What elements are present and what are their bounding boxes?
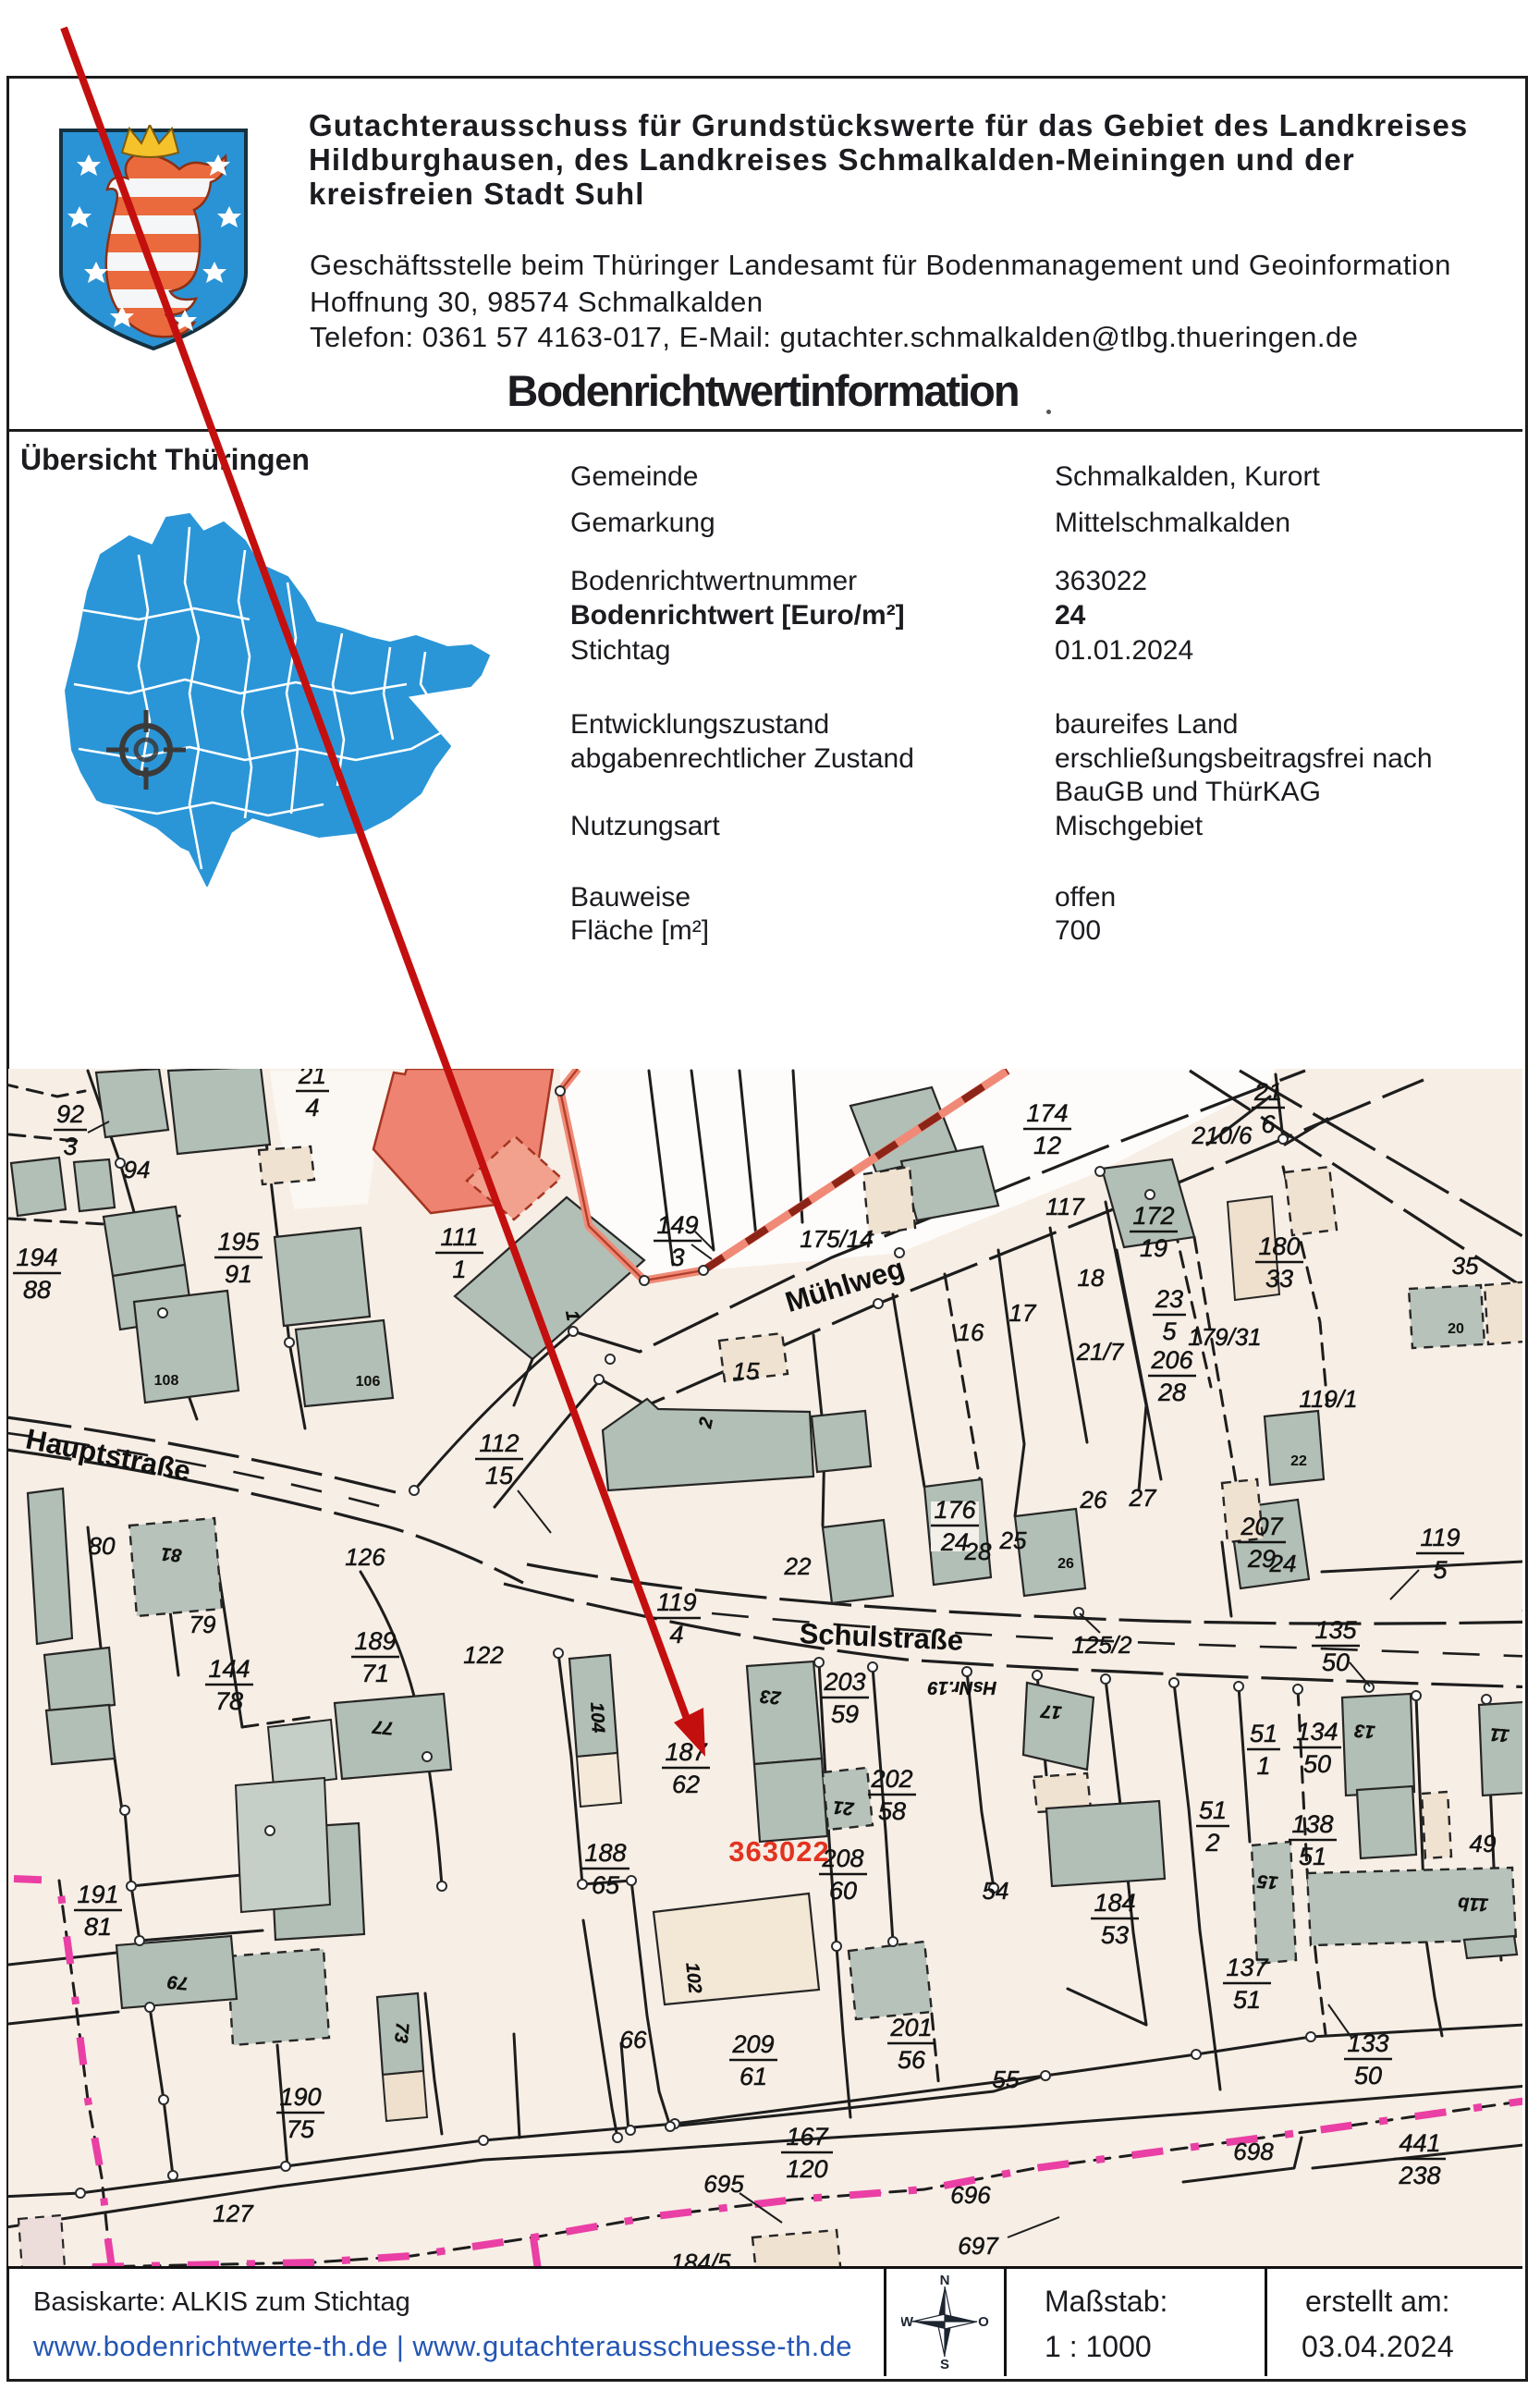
- svg-text:167: 167: [786, 2123, 828, 2151]
- svg-text:3: 3: [63, 1133, 77, 1160]
- svg-text:51: 51: [1250, 1720, 1277, 1747]
- svg-text:51: 51: [1233, 1986, 1261, 2014]
- svg-text:207: 207: [1240, 1513, 1283, 1540]
- svg-text:26: 26: [1080, 1486, 1107, 1514]
- svg-text:119: 119: [1420, 1524, 1460, 1551]
- svg-text:5: 5: [1162, 1318, 1177, 1345]
- svg-text:127: 127: [213, 2200, 254, 2227]
- svg-text:24: 24: [1269, 1550, 1297, 1577]
- svg-text:210/6: 210/6: [1191, 1121, 1253, 1149]
- svg-text:209: 209: [731, 2030, 774, 2058]
- svg-text:135: 135: [1314, 1616, 1357, 1644]
- svg-text:191: 191: [77, 1881, 118, 1908]
- svg-text:81: 81: [160, 1543, 182, 1565]
- svg-text:51: 51: [1199, 1796, 1227, 1824]
- svg-text:17: 17: [1040, 1700, 1063, 1722]
- svg-text:23: 23: [759, 1685, 782, 1708]
- svg-text:112: 112: [479, 1429, 519, 1457]
- svg-text:62: 62: [672, 1771, 700, 1798]
- svg-text:21/7: 21/7: [1076, 1338, 1125, 1366]
- svg-text:202: 202: [870, 1765, 912, 1793]
- svg-text:149: 149: [656, 1211, 698, 1239]
- svg-text:21: 21: [1253, 1078, 1282, 1106]
- svg-text:144: 144: [208, 1655, 250, 1683]
- svg-text:108: 108: [154, 1373, 179, 1389]
- svg-text:133: 133: [1347, 2029, 1388, 2057]
- svg-text:4: 4: [305, 1094, 319, 1121]
- svg-text:55: 55: [993, 2065, 1020, 2093]
- svg-text:6: 6: [1261, 1110, 1276, 1138]
- svg-text:125/2: 125/2: [1071, 1631, 1132, 1659]
- svg-text:190: 190: [279, 2083, 321, 2111]
- svg-text:106: 106: [356, 1374, 381, 1390]
- svg-text:50: 50: [1322, 1648, 1350, 1676]
- svg-text:77: 77: [372, 1716, 395, 1738]
- svg-text:65: 65: [592, 1871, 620, 1899]
- svg-text:50: 50: [1303, 1750, 1331, 1778]
- svg-text:88: 88: [23, 1276, 51, 1304]
- svg-text:20: 20: [1448, 1321, 1464, 1337]
- svg-text:134: 134: [1296, 1718, 1338, 1746]
- svg-text:15: 15: [1256, 1870, 1279, 1893]
- svg-text:73: 73: [390, 2021, 412, 2043]
- svg-text:363022: 363022: [728, 1835, 829, 1868]
- svg-text:33: 33: [1265, 1265, 1293, 1293]
- svg-text:187: 187: [665, 1738, 707, 1766]
- svg-text:N: N: [940, 2274, 950, 2288]
- svg-text:111: 111: [440, 1223, 478, 1251]
- svg-text:696: 696: [950, 2181, 991, 2209]
- svg-text:58: 58: [878, 1797, 906, 1825]
- svg-text:26: 26: [1057, 1556, 1074, 1572]
- svg-text:102: 102: [681, 1962, 704, 1994]
- svg-text:172: 172: [1132, 1202, 1174, 1230]
- svg-text:695: 695: [703, 2170, 744, 2198]
- svg-text:441: 441: [1399, 2129, 1440, 2157]
- svg-text:5: 5: [1433, 1556, 1448, 1584]
- svg-text:119/1: 119/1: [1299, 1385, 1357, 1413]
- svg-text:176: 176: [934, 1496, 976, 1524]
- svg-text:28: 28: [1157, 1379, 1186, 1406]
- svg-text:59: 59: [831, 1700, 859, 1728]
- svg-text:O: O: [978, 2314, 989, 2330]
- svg-text:79: 79: [189, 1611, 216, 1638]
- svg-text:11: 11: [1489, 1723, 1510, 1746]
- svg-text:126: 126: [345, 1543, 385, 1571]
- svg-text:60: 60: [829, 1877, 857, 1905]
- svg-text:21: 21: [298, 1063, 326, 1089]
- svg-text:61: 61: [739, 2063, 767, 2090]
- svg-text:184/5: 184/5: [670, 2249, 731, 2268]
- svg-text:92: 92: [56, 1100, 84, 1128]
- svg-text:25: 25: [999, 1526, 1027, 1554]
- svg-text:49: 49: [1470, 1830, 1497, 1857]
- svg-text:HsNr.19: HsNr.19: [927, 1677, 996, 1698]
- svg-text:184: 184: [1094, 1889, 1135, 1917]
- svg-text:35: 35: [1452, 1252, 1479, 1280]
- svg-text:54: 54: [983, 1877, 1009, 1905]
- svg-text:188: 188: [584, 1839, 626, 1867]
- svg-text:53: 53: [1101, 1921, 1129, 1949]
- svg-text:22: 22: [1290, 1453, 1307, 1469]
- svg-text:174: 174: [1026, 1099, 1068, 1127]
- svg-text:91: 91: [225, 1260, 252, 1288]
- svg-text:79: 79: [166, 1971, 189, 1993]
- svg-text:138: 138: [1291, 1810, 1333, 1838]
- svg-text:56: 56: [898, 2046, 926, 2074]
- svg-text:2: 2: [1204, 1829, 1219, 1857]
- svg-text:180: 180: [1258, 1232, 1300, 1260]
- svg-text:3: 3: [670, 1244, 684, 1271]
- svg-text:21: 21: [832, 1796, 855, 1819]
- svg-text:179/31: 179/31: [1188, 1323, 1262, 1351]
- svg-text:122: 122: [463, 1641, 504, 1669]
- svg-text:120: 120: [786, 2155, 827, 2183]
- svg-text:119: 119: [656, 1588, 696, 1616]
- svg-text:12: 12: [1033, 1132, 1061, 1159]
- svg-text:16: 16: [958, 1318, 984, 1346]
- svg-text:75: 75: [287, 2115, 315, 2143]
- svg-text:22: 22: [784, 1552, 812, 1580]
- svg-text:117: 117: [1045, 1193, 1085, 1220]
- svg-text:81: 81: [84, 1913, 112, 1941]
- svg-text:104: 104: [586, 1701, 608, 1733]
- svg-text:27: 27: [1129, 1484, 1157, 1512]
- svg-text:189: 189: [354, 1627, 396, 1655]
- svg-text:698: 698: [1233, 2138, 1274, 2165]
- svg-text:137: 137: [1226, 1954, 1268, 1981]
- svg-text:18: 18: [1078, 1264, 1105, 1292]
- svg-text:15: 15: [733, 1357, 760, 1385]
- svg-text:238: 238: [1398, 2162, 1440, 2189]
- svg-text:201: 201: [889, 2014, 932, 2041]
- svg-text:15: 15: [485, 1462, 514, 1489]
- svg-text:51: 51: [1299, 1843, 1326, 1870]
- svg-text:13: 13: [1353, 1720, 1375, 1742]
- svg-text:1: 1: [1256, 1752, 1270, 1780]
- svg-text:1: 1: [452, 1256, 466, 1283]
- svg-text:66: 66: [620, 2026, 647, 2053]
- svg-text:71: 71: [361, 1660, 389, 1687]
- svg-text:175/14: 175/14: [800, 1225, 874, 1253]
- svg-text:194: 194: [16, 1244, 57, 1271]
- svg-text:W: W: [901, 2314, 914, 2330]
- svg-text:17: 17: [1009, 1299, 1037, 1327]
- svg-text:94: 94: [124, 1156, 151, 1183]
- svg-text:697: 697: [958, 2232, 999, 2260]
- svg-text:11b: 11b: [1458, 1893, 1489, 1914]
- svg-text:195: 195: [217, 1228, 260, 1256]
- svg-text:50: 50: [1354, 2062, 1382, 2090]
- svg-text:78: 78: [215, 1687, 243, 1715]
- svg-text:S: S: [940, 2357, 949, 2370]
- svg-text:19: 19: [1140, 1234, 1167, 1262]
- svg-text:23: 23: [1155, 1285, 1183, 1313]
- svg-text:80: 80: [89, 1532, 116, 1560]
- svg-text:203: 203: [823, 1668, 865, 1696]
- svg-text:4: 4: [669, 1621, 683, 1648]
- svg-text:28: 28: [964, 1538, 992, 1565]
